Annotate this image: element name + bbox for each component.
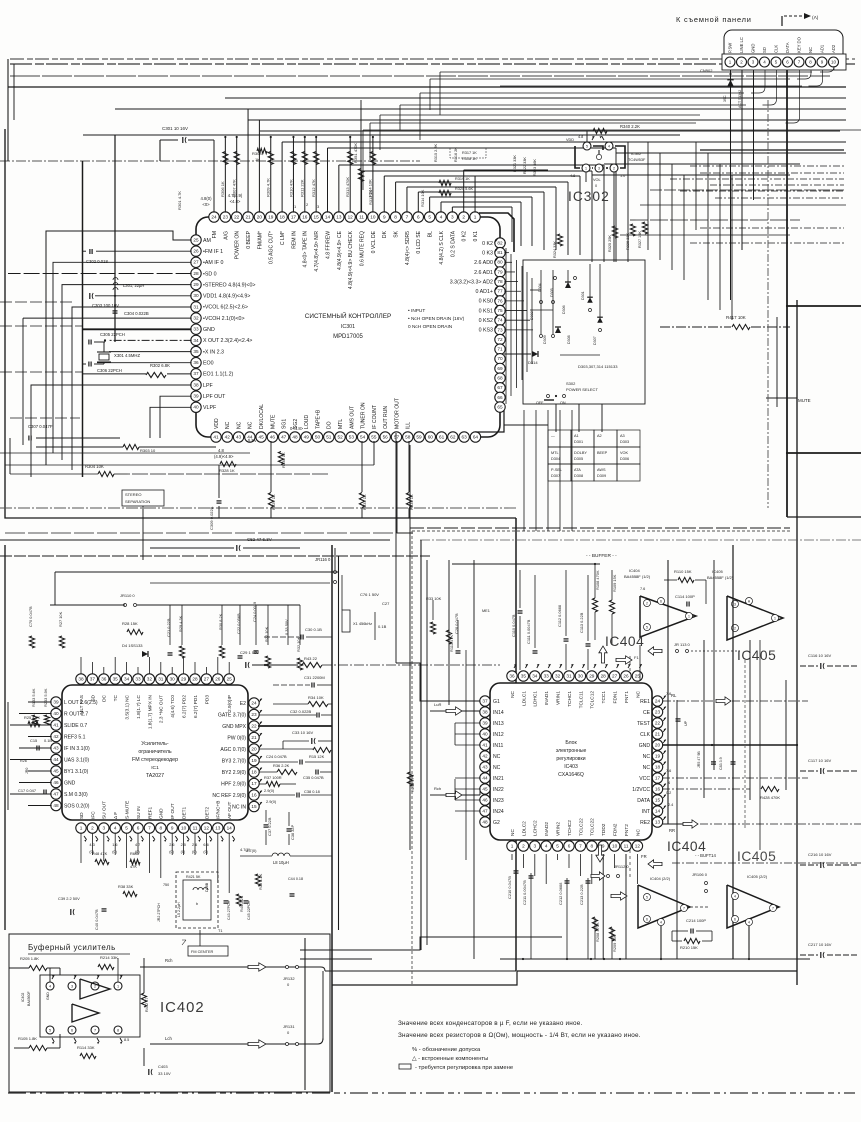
svg-text:5: 5 <box>428 214 431 219</box>
svg-text:9: 9 <box>602 843 605 848</box>
svg-text:C33 10 16V: C33 10 16V <box>292 730 314 735</box>
svg-text:46: 46 <box>53 780 59 785</box>
svg-text:VRIN2: VRIN2 <box>556 822 562 836</box>
svg-text:POWER ON: POWER ON <box>235 231 241 260</box>
svg-text:14: 14 <box>227 825 233 830</box>
svg-text:(Λ): (Λ) <box>812 15 819 21</box>
svg-text:0 KS1: 0 KS1 <box>479 308 493 314</box>
svg-text:33: 33 <box>544 673 550 678</box>
svg-text:BEEP: BEEP <box>597 451 608 455</box>
svg-text:R311 22K: R311 22K <box>300 179 305 197</box>
svg-text:TCHC2: TCHC2 <box>567 820 573 836</box>
svg-text:BA4560F: BA4560F <box>27 991 31 1006</box>
svg-text:21: 21 <box>251 735 257 740</box>
svg-text:R315 2.2K: R315 2.2K <box>434 144 438 162</box>
svg-text:10: 10 <box>181 825 187 830</box>
svg-text:23: 23 <box>655 709 661 714</box>
svg-text:14: 14 <box>655 808 661 813</box>
svg-text:IC404 (2/2): IC404 (2/2) <box>650 876 671 881</box>
svg-text:R338 1K: R338 1K <box>281 452 286 468</box>
svg-text:10: 10 <box>370 214 376 219</box>
svg-text:R37 100R: R37 100R <box>264 775 282 780</box>
svg-text:JR112 0: JR112 0 <box>614 864 629 869</box>
svg-text:13: 13 <box>336 214 342 219</box>
svg-text:R428 470K: R428 470K <box>760 795 780 800</box>
svg-text:41: 41 <box>53 722 59 727</box>
svg-text:IF IN 3.1(0): IF IN 3.1(0) <box>64 746 90 752</box>
svg-text:FDN1: FDN1 <box>613 691 619 704</box>
svg-text:0 KS0: 0 KS0 <box>479 299 493 305</box>
svg-text:40: 40 <box>482 731 488 736</box>
svg-text:К съемной панели: К съемной панели <box>676 15 752 24</box>
svg-text:4: 4 <box>545 843 548 848</box>
svg-text:2.6 AD0: 2.6 AD0 <box>474 260 493 266</box>
svg-text:C403: C403 <box>158 1064 168 1069</box>
svg-text:VDD: VDD <box>214 418 220 429</box>
svg-text:C76 1 50V: C76 1 50V <box>360 592 379 597</box>
svg-text:1: 1 <box>117 984 119 988</box>
svg-text:7: 7 <box>683 907 685 911</box>
svg-text:TA2027: TA2027 <box>146 773 164 779</box>
svg-text:7.6: 7.6 <box>666 692 671 696</box>
svg-text:72: 72 <box>497 337 503 342</box>
svg-text:TCLC22: TCLC22 <box>578 818 584 836</box>
svg-text:L5 2.2µH: L5 2.2µH <box>177 902 181 917</box>
svg-text:BY1 3.1(0): BY1 3.1(0) <box>64 769 89 775</box>
svg-text:R105 1.8K: R105 1.8K <box>18 1036 37 1041</box>
svg-text:C217 10 16V: C217 10 16V <box>808 942 832 947</box>
svg-text:2: 2 <box>522 843 525 848</box>
svg-text:4.8 FF/REW: 4.8 FF/REW <box>325 231 331 259</box>
svg-text:PW 0(0): PW 0(0) <box>227 735 246 741</box>
svg-text:41: 41 <box>482 742 488 747</box>
svg-text:IN24: IN24 <box>493 809 504 815</box>
svg-text:JR5 47 9B: JR5 47 9B <box>697 751 701 768</box>
svg-text:UAS 3.1(0): UAS 3.1(0) <box>64 757 89 763</box>
svg-text:30: 30 <box>578 673 584 678</box>
svg-text:11: 11 <box>624 843 629 848</box>
svg-text:5: 5 <box>586 144 588 148</box>
svg-text:Буферный усилитель: Буферный усилитель <box>28 943 116 952</box>
svg-text:LCHC2: LCHC2 <box>533 820 539 836</box>
svg-text:JR116 0: JR116 0 <box>315 557 331 562</box>
svg-text:43: 43 <box>53 745 59 750</box>
svg-text:R323 56K: R323 56K <box>533 159 537 176</box>
svg-text:25: 25 <box>635 673 641 678</box>
svg-text:R301 4.7K: R301 4.7K <box>177 191 182 210</box>
svg-text:TCC1: TCC1 <box>601 691 607 704</box>
svg-text:C38 33P: C38 33P <box>290 824 295 840</box>
svg-text:18: 18 <box>251 769 257 774</box>
svg-text:R310 47K: R310 47K <box>288 179 293 197</box>
svg-text:Значение всех резисторов в: Значение всех резисторов в Ω(Ом), мощнос… <box>398 1032 641 1039</box>
svg-text:C31 2200M: C31 2200M <box>304 675 325 680</box>
svg-text:NC: NC <box>808 47 813 53</box>
svg-text:34: 34 <box>193 338 199 343</box>
svg-text:IC402: IC402 <box>21 993 25 1002</box>
svg-text:2.9(0): 2.9(0) <box>266 799 277 804</box>
svg-text:21: 21 <box>655 731 661 736</box>
svg-text:R110 15K: R110 15K <box>674 569 692 574</box>
svg-text:4: 4 <box>114 825 117 830</box>
svg-text:- - BUFFER - -: - - BUFFER - - <box>586 553 617 559</box>
svg-text:19: 19 <box>251 758 257 763</box>
svg-text:F1: F1 <box>634 655 639 660</box>
svg-text:TCLC12: TCLC12 <box>590 691 596 709</box>
svg-text:JR110 0: JR110 0 <box>120 593 135 598</box>
svg-text:42: 42 <box>482 753 488 758</box>
svg-text:IN21: IN21 <box>493 776 504 782</box>
svg-text:AM: AM <box>203 238 211 244</box>
svg-text:63: 63 <box>462 434 468 439</box>
svg-text:47: 47 <box>281 434 287 439</box>
svg-text:CXA1646Q: CXA1646Q <box>558 772 584 778</box>
svg-text:GND: GND <box>639 743 651 749</box>
svg-text:37: 37 <box>193 371 199 376</box>
svg-text:0.2: 0.2 <box>666 791 671 795</box>
svg-text:DOLBY: DOLBY <box>574 451 587 455</box>
svg-text:REM IN: REM IN <box>291 231 297 249</box>
svg-text:LOUD: LOUD <box>304 415 310 429</box>
svg-text:3: 3 <box>451 214 454 219</box>
svg-text:24: 24 <box>211 214 217 219</box>
svg-text:R421 5K: R421 5K <box>186 875 201 879</box>
svg-text:C214 100P: C214 100P <box>686 918 706 923</box>
svg-text:LINE LC: LINE LC <box>739 37 744 53</box>
svg-text:5: 5 <box>556 843 559 848</box>
svg-text:R328 1K: R328 1K <box>219 468 235 473</box>
svg-text:A3: A3 <box>620 434 625 438</box>
svg-text:FDN2: FDN2 <box>613 823 619 836</box>
svg-text:40: 40 <box>193 405 199 410</box>
svg-text:50: 50 <box>315 434 321 439</box>
svg-text:0 KS2: 0 KS2 <box>479 318 493 324</box>
svg-text:NC: NC <box>248 421 254 429</box>
svg-text:10: 10 <box>612 843 618 848</box>
svg-text:C213 0.22B: C213 0.22B <box>579 884 584 905</box>
svg-text:45: 45 <box>259 434 265 439</box>
svg-text:19: 19 <box>268 214 274 219</box>
svg-text:•STEREO 4.8(4.9)<0>: •STEREO 4.8(4.9)<0> <box>203 282 256 288</box>
svg-text:61: 61 <box>439 434 445 439</box>
svg-text:SEPARATION: SEPARATION <box>125 499 150 504</box>
svg-text:35: 35 <box>193 349 199 354</box>
svg-text:3: 3 <box>598 166 600 170</box>
svg-text:29: 29 <box>589 673 595 678</box>
svg-text:S-MUTE: S-MUTE <box>125 801 131 819</box>
svg-text:0 LCD SE: 0 LCD SE <box>416 230 422 253</box>
svg-text:JR131: JR131 <box>283 1024 295 1029</box>
svg-text:0 BEEP: 0 BEEP <box>246 230 252 248</box>
svg-text:EO0: EO0 <box>203 360 214 366</box>
svg-text:2: 2 <box>462 214 465 219</box>
svg-text:•VCOH 2.1(0)<0>: •VCOH 2.1(0)<0> <box>203 316 245 322</box>
svg-text:6.2(7) PD1: 6.2(7) PD1 <box>193 695 199 718</box>
svg-text:81: 81 <box>497 250 503 255</box>
svg-text:CLK: CLK <box>774 45 779 53</box>
svg-text:D314: D314 <box>528 360 538 365</box>
svg-text:46: 46 <box>270 434 276 439</box>
svg-text:43: 43 <box>482 764 488 769</box>
svg-text:16: 16 <box>302 214 308 219</box>
svg-text:R210 15K: R210 15K <box>680 945 698 950</box>
svg-text:HPF 2.9(0): HPF 2.9(0) <box>221 781 246 787</box>
svg-text:D309: D309 <box>543 335 547 344</box>
svg-text:Усилитель-: Усилитель- <box>141 741 169 747</box>
svg-text:C116 10 16V: C116 10 16V <box>808 653 831 658</box>
svg-text:Δ F: Δ F <box>113 812 119 819</box>
svg-text:D307: D307 <box>593 336 597 345</box>
svg-text:AGC 0.7(0): AGC 0.7(0) <box>220 747 246 753</box>
svg-text:NC: NC <box>635 690 641 697</box>
svg-text:R417 10K: R417 10K <box>726 315 746 320</box>
svg-text:76: 76 <box>497 298 503 303</box>
svg-text:NC: NC <box>236 421 242 429</box>
svg-text:TCLC11: TCLC11 <box>578 691 584 709</box>
svg-text:IN22: IN22 <box>493 787 504 793</box>
svg-text:47: 47 <box>53 791 59 796</box>
svg-text:2: 2 <box>734 627 736 631</box>
svg-text:62: 62 <box>450 434 456 439</box>
svg-text:6: 6 <box>71 1028 73 1032</box>
svg-text:T1: T1 <box>218 929 222 933</box>
svg-text:SD: SD <box>762 47 767 53</box>
svg-text:LPF OUT: LPF OUT <box>203 394 226 400</box>
svg-text:REF1: REF1 <box>147 806 153 819</box>
svg-text:FNT1: FNT1 <box>624 691 630 703</box>
svg-text:C24 0.047B: C24 0.047B <box>266 754 287 759</box>
svg-text:R308: R308 <box>252 151 262 156</box>
svg-text:750: 750 <box>163 883 169 887</box>
svg-text:4.8: 4.8 <box>218 448 225 453</box>
svg-text:GND: GND <box>46 992 50 1000</box>
svg-text:0.5 AGC CUT*: 0.5 AGC CUT* <box>269 231 275 264</box>
svg-text:15: 15 <box>314 214 320 219</box>
svg-text:42: 42 <box>53 734 59 739</box>
svg-text:36: 36 <box>509 673 515 678</box>
svg-text:2: 2 <box>94 984 96 988</box>
svg-text:S.M 0.3(0): S.M 0.3(0) <box>64 792 88 798</box>
svg-text:20: 20 <box>257 214 263 219</box>
svg-text:R15 12K: R15 12K <box>309 754 325 759</box>
svg-text:12: 12 <box>348 214 354 219</box>
svg-text:3: 3 <box>71 984 73 988</box>
svg-text:4.8: 4.8 <box>570 174 575 178</box>
svg-text:C112 0.0688: C112 0.0688 <box>557 605 562 627</box>
svg-text:•SD 0: •SD 0 <box>203 271 217 277</box>
svg-text:39: 39 <box>53 699 59 704</box>
svg-text:5: 5 <box>646 626 648 630</box>
svg-text:12: 12 <box>635 843 641 848</box>
svg-text:45: 45 <box>53 768 59 773</box>
svg-text:IC405: IC405 <box>737 849 776 864</box>
svg-text:4.8(4)<> SDR5: 4.8(4)<> SDR5 <box>405 231 411 265</box>
svg-text:RE1: RE1 <box>640 699 650 705</box>
svg-text:VDD: VDD <box>566 138 574 142</box>
svg-text:8: 8 <box>159 825 162 830</box>
svg-text:37: 37 <box>482 698 488 703</box>
svg-text:36: 36 <box>101 676 107 681</box>
svg-text:C39 2.2 50V: C39 2.2 50V <box>58 896 80 901</box>
svg-text:28: 28 <box>192 676 198 681</box>
svg-text:18: 18 <box>655 764 661 769</box>
svg-text:NC REF 2.9(0): NC REF 2.9(0) <box>212 793 246 799</box>
svg-text:4.8(4.9)<4.9> BU CHECK: 4.8(4.9)<4.9> BU CHECK <box>348 230 354 289</box>
svg-text:54: 54 <box>360 434 366 439</box>
svg-text:39: 39 <box>482 720 488 725</box>
svg-text:32: 32 <box>147 676 153 681</box>
svg-text:ограничитель: ограничитель <box>138 749 172 755</box>
svg-text:4: 4 <box>49 984 51 988</box>
svg-text:0 AD1+: 0 AD1+ <box>475 289 493 295</box>
svg-text:C32 0.022B: C32 0.022B <box>290 709 312 714</box>
svg-text:R340 2.2K: R340 2.2K <box>620 124 640 129</box>
svg-text:17: 17 <box>291 214 297 219</box>
svg-text:R209 15K: R209 15K <box>612 934 617 952</box>
svg-text:—: — <box>551 434 555 438</box>
svg-text:электронные: электронные <box>556 748 587 754</box>
svg-text:RE2: RE2 <box>640 820 650 826</box>
svg-text:TAPE+B: TAPE+B <box>315 409 321 429</box>
svg-text:D304: D304 <box>551 457 561 461</box>
svg-text:C30 0.1B: C30 0.1B <box>305 627 322 632</box>
svg-text:35: 35 <box>521 673 527 678</box>
svg-text:26: 26 <box>193 249 199 254</box>
svg-text:R333 1K: R333 1K <box>362 494 367 510</box>
svg-text:2.3 *NC OUT: 2.3 *NC OUT <box>159 695 165 723</box>
svg-text:△ - встроенные компоненты: △ - встроенные компоненты <box>412 1056 488 1062</box>
svg-text:• INPUT: • INPUT <box>408 308 425 314</box>
svg-text:E2: E2 <box>240 701 246 707</box>
svg-text:EO1 1.1(1.2): EO1 1.1(1.2) <box>203 372 234 378</box>
svg-text:66: 66 <box>497 395 503 400</box>
svg-text:D301: D301 <box>574 440 583 444</box>
svg-text:77: 77 <box>497 289 503 294</box>
svg-text:LDLC1: LDLC1 <box>521 691 527 706</box>
svg-text:40: 40 <box>53 711 59 716</box>
svg-text:- требуется регулировка при: - требуется регулировка при замене <box>415 1065 513 1071</box>
svg-text:C27: C27 <box>382 601 390 606</box>
svg-text:IF/NC+B: IF/NC+B <box>216 801 222 819</box>
svg-text:6: 6 <box>660 600 662 604</box>
svg-text:5: 5 <box>125 825 128 830</box>
svg-text:МРD17005: МРD17005 <box>333 334 363 340</box>
svg-text:2.6 AD1: 2.6 AD1 <box>474 270 493 276</box>
svg-text:79: 79 <box>497 269 503 274</box>
svg-text:STEREO: STEREO <box>125 492 142 497</box>
svg-text:25: 25 <box>193 237 199 242</box>
svg-text:NC: NC <box>493 765 501 771</box>
svg-text:43: 43 <box>236 434 242 439</box>
svg-text:IN12: IN12 <box>493 732 504 738</box>
svg-text:GND: GND <box>751 44 756 53</box>
svg-text:FM/AM*: FM/AM* <box>257 231 263 249</box>
svg-text:C110 0.047B: C110 0.047B <box>511 614 516 637</box>
svg-text:R319 1K: R319 1K <box>455 177 470 181</box>
svg-text:D4 1SS133: D4 1SS133 <box>122 643 143 648</box>
svg-text:R313 1K: R313 1K <box>368 189 373 205</box>
svg-text:DATA: DATA <box>785 42 790 53</box>
svg-text:48: 48 <box>482 819 488 824</box>
svg-text:RR: RR <box>669 828 675 833</box>
svg-text:16: 16 <box>251 792 257 797</box>
svg-text:1: 1 <box>688 615 690 619</box>
svg-text:SK: SK <box>394 230 400 237</box>
svg-text:DO: DO <box>327 421 333 429</box>
svg-text:ILL: ILL <box>406 422 412 429</box>
svg-text:6.2(7) PD2: 6.2(7) PD2 <box>182 695 188 718</box>
svg-text:•X IN 2.3: •X IN 2.3 <box>203 349 224 355</box>
svg-text:A1: A1 <box>574 434 579 438</box>
svg-text:MTL: MTL <box>551 451 559 455</box>
svg-text:R312 47K: R312 47K <box>311 179 316 197</box>
svg-text:D308: D308 <box>567 335 571 344</box>
svg-text:75: 75 <box>497 308 503 313</box>
svg-text:L301, 22µH: L301, 22µH <box>123 283 144 288</box>
svg-text:- - BUFT14: - - BUFT14 <box>695 853 717 858</box>
svg-text:AWS: AWS <box>597 468 606 472</box>
svg-text:3: 3 <box>102 825 105 830</box>
svg-text:31: 31 <box>158 676 164 681</box>
svg-text:R OUT 2.7: R OUT 2.7 <box>64 711 88 717</box>
svg-text:31: 31 <box>193 304 199 309</box>
svg-text:1/2VCC: 1/2VCC <box>632 787 650 793</box>
svg-text:10: 10 <box>831 59 837 64</box>
svg-text:0 K2: 0 K2 <box>482 241 493 247</box>
svg-text:3: 3 <box>734 603 736 607</box>
svg-text:(4.9)<4.9>: (4.9)<4.9> <box>214 454 234 459</box>
svg-text:18: 18 <box>279 214 285 219</box>
svg-text:LDLC2: LDLC2 <box>521 821 527 836</box>
svg-text:22: 22 <box>251 723 257 728</box>
svg-text:R329 1K: R329 1K <box>271 494 276 510</box>
svg-text:14: 14 <box>325 214 331 219</box>
svg-text:7: 7 <box>94 1028 96 1032</box>
svg-text:R48 47K: R48 47K <box>92 851 108 856</box>
svg-text:POWER SELECT: POWER SELECT <box>566 387 598 392</box>
svg-text:R25 4.7K: R25 4.7K <box>24 715 41 720</box>
svg-text:R302 6.8K: R302 6.8K <box>150 363 170 368</box>
svg-text:33: 33 <box>135 676 141 681</box>
svg-text:29: 29 <box>181 676 187 681</box>
svg-text:1K: 1K <box>255 157 260 162</box>
svg-text:R108 470K: R108 470K <box>595 570 600 590</box>
svg-text:C302 0.018: C302 0.018 <box>86 259 108 264</box>
svg-text:VRIN1: VRIN1 <box>556 691 562 705</box>
svg-text:D305: D305 <box>574 457 583 461</box>
svg-text:REF3 5.1: REF3 5.1 <box>64 734 86 740</box>
svg-text:IC404: IC404 <box>605 634 644 649</box>
svg-text:NC: NC <box>643 754 651 760</box>
svg-text:4.8<0> TAPE IN: 4.8<0> TAPE IN <box>303 231 309 268</box>
svg-text:Rch: Rch <box>434 786 441 791</box>
svg-text:6: 6 <box>646 918 648 922</box>
svg-text:4.8(0): 4.8(0) <box>200 196 212 201</box>
svg-text:24: 24 <box>655 698 661 703</box>
svg-text:C305 22PCH: C305 22PCH <box>100 332 125 337</box>
svg-text:DK/LOCAL: DK/LOCAL <box>259 404 265 429</box>
svg-text:69: 69 <box>497 366 503 371</box>
svg-text:• NcH OPEN DRAIN (16V): • NcH OPEN DRAIN (16V) <box>408 316 465 322</box>
svg-text:Rch: Rch <box>165 958 173 963</box>
svg-text:R205 1.8K: R205 1.8K <box>20 956 39 961</box>
svg-text:4: 4 <box>608 144 610 148</box>
svg-text:1: 1 <box>474 214 477 219</box>
svg-text:TCHC1: TCHC1 <box>567 691 573 707</box>
svg-text:MTL: MTL <box>338 419 344 429</box>
svg-text:35: 35 <box>113 676 119 681</box>
svg-text:KEY DO: KEY DO <box>797 36 802 53</box>
